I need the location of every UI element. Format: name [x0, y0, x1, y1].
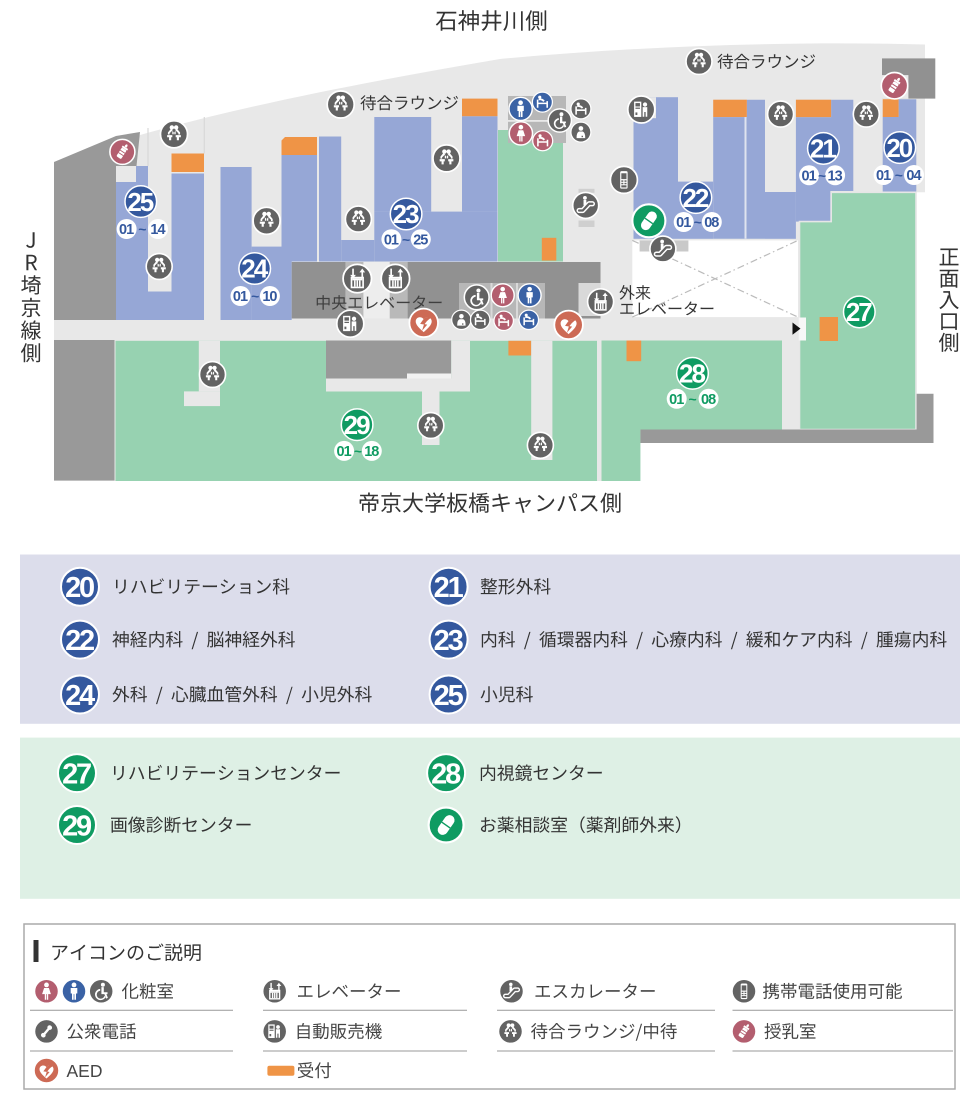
- svg-text:28: 28: [431, 759, 461, 791]
- svg-text:~: ~: [895, 167, 903, 183]
- svg-text:22: 22: [65, 625, 94, 657]
- svg-text:04: 04: [906, 168, 921, 184]
- svg-text:01: 01: [384, 232, 399, 248]
- svg-text:~: ~: [818, 168, 826, 184]
- svg-text:14: 14: [150, 222, 165, 238]
- svg-text:01: 01: [802, 169, 817, 185]
- svg-text:18: 18: [364, 444, 379, 460]
- svg-text:10: 10: [262, 289, 277, 305]
- svg-text:23: 23: [393, 199, 419, 229]
- svg-text:21: 21: [434, 572, 464, 604]
- svg-text:20: 20: [65, 572, 94, 604]
- svg-text:27: 27: [62, 759, 91, 791]
- svg-text:~: ~: [694, 214, 702, 230]
- svg-text:01: 01: [669, 392, 684, 408]
- svg-text:AED: AED: [67, 1061, 103, 1081]
- svg-text:20: 20: [886, 133, 912, 163]
- svg-text:22: 22: [682, 183, 708, 213]
- svg-text:25: 25: [127, 187, 153, 217]
- svg-text:08: 08: [704, 215, 719, 231]
- svg-text:01: 01: [676, 215, 691, 231]
- svg-text:01: 01: [876, 168, 891, 184]
- svg-text:~: ~: [402, 231, 410, 247]
- svg-text:23: 23: [434, 625, 464, 657]
- svg-text:~: ~: [251, 288, 259, 304]
- svg-text:~: ~: [354, 443, 362, 459]
- svg-text:01: 01: [119, 222, 134, 238]
- svg-text:21: 21: [810, 134, 836, 164]
- svg-text:24: 24: [65, 680, 95, 712]
- svg-text:25: 25: [413, 232, 428, 248]
- svg-text:13: 13: [828, 169, 843, 185]
- svg-text:01: 01: [337, 444, 352, 460]
- svg-text:27: 27: [846, 297, 872, 327]
- svg-text:28: 28: [679, 359, 705, 389]
- svg-text:~: ~: [689, 391, 697, 407]
- svg-text:25: 25: [434, 680, 464, 712]
- svg-text:01: 01: [233, 289, 248, 305]
- svg-text:24: 24: [241, 254, 268, 284]
- svg-text:29: 29: [62, 811, 92, 843]
- svg-text:~: ~: [138, 221, 146, 237]
- svg-text:08: 08: [701, 392, 716, 408]
- svg-text:29: 29: [344, 410, 370, 440]
